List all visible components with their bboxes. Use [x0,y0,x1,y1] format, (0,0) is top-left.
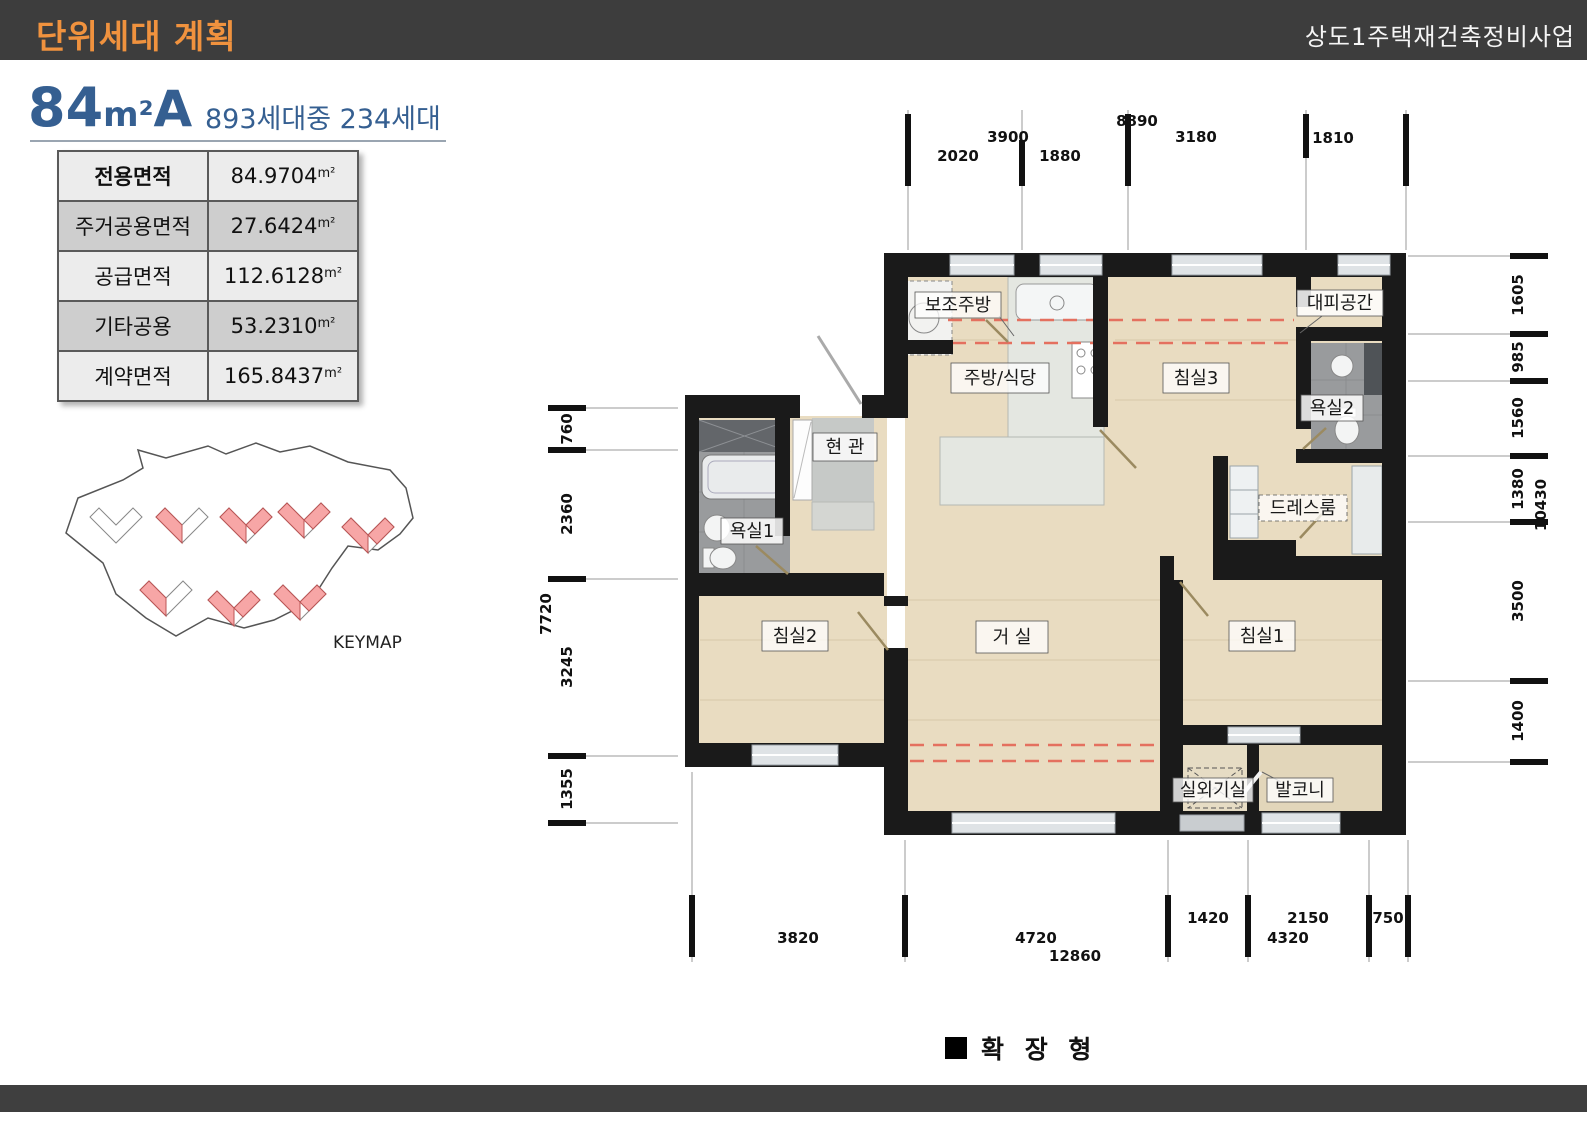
area-row-value: 112.6128 [224,264,324,288]
dim-right-seg-1: 985 [1509,341,1527,372]
entrance-mat [812,502,874,530]
dimension-top: 8890 3900 3180 1810 2020 1880 [905,110,1409,250]
area-row-value: 27.6424 [231,214,318,238]
dim-right-total: 10430 [1532,479,1550,531]
room-label-bath1: 욕실1 [721,518,783,544]
svg-text:실외기실: 실외기실 [1180,780,1246,801]
dim-right-seg-2: 1560 [1509,397,1527,439]
dim-top-seg-1: 1880 [1039,147,1081,165]
svg-text:욕실1: 욕실1 [730,521,775,542]
floor-plan: 8890 3900 3180 1810 2020 1880 760 2360 3… [530,85,1570,985]
dim-right-seg-4: 3500 [1509,580,1527,622]
room-label-bedroom2: 침실2 [762,621,828,651]
dimension-left: 760 2360 3245 1355 7720 [537,405,678,826]
dim-right-seg-3: 1380 [1509,468,1527,510]
dim-bottom-total: 12860 [1049,947,1101,965]
room-label-entrance: 현 관 [813,433,877,461]
dim-right-seg-5: 1400 [1509,700,1527,742]
svg-text:현 관: 현 관 [826,437,865,458]
legend-expanded-type: 확 장 형 [945,1030,1097,1066]
keymap: KEYMAP [48,438,423,673]
area-row-value: 53.2310 [231,314,318,338]
room-label-aux-kitchen: 보조주방 [915,292,1001,318]
dim-top-seg-2: 3180 [1175,128,1217,146]
svg-text:침실2: 침실2 [773,626,818,647]
unit-household-count: 893세대중 234세대 [205,97,441,136]
area-row-value: 84.9704 [231,164,318,188]
svg-text:발코니: 발코니 [1275,780,1325,801]
keymap-buildings [90,503,394,626]
dim-right-seg-0: 1605 [1509,274,1527,316]
area-row-label: 전용면적 [58,151,208,201]
room-label-outdoor-unit: 실외기실 [1173,778,1253,802]
entrance-door-swing [818,336,861,404]
dim-bottom-sub: 4320 [1267,929,1309,947]
room-label-bath2: 욕실2 [1301,395,1363,421]
dim-left-seg-2: 3245 [558,646,576,688]
dimension-right: 1605 985 1560 1380 3500 1400 10430 [1408,253,1550,765]
table-row: 주거공용면적 27.6424m² [58,201,358,251]
washbasin-icon [1331,355,1353,377]
area-row-label: 공급면적 [58,251,208,301]
svg-text:욕실2: 욕실2 [1310,398,1355,419]
area-row-value: 165.8437 [224,364,324,388]
area-row-label: 기타공용 [58,301,208,351]
dim-bottom-seg-2: 1420 [1187,909,1229,927]
sink-icon [1016,284,1098,320]
room-label-living: 거 실 [976,621,1048,653]
table-row: 기타공용 53.2310m² [58,301,358,351]
area-row-label: 계약면적 [58,351,208,401]
keymap-title: KEYMAP [333,633,402,653]
room-label-balcony: 발코니 [1267,778,1333,802]
unit-type-title: 84m²A [28,76,192,139]
area-table: 전용면적 84.9704m² 주거공용면적 27.6424m² 공급면적 112… [57,150,359,402]
svg-text:드레스룸: 드레스룸 [1270,498,1336,519]
svg-text:침실3: 침실3 [1174,368,1219,389]
dim-bottom-seg-0: 3820 [777,929,819,947]
svg-text:보조주방: 보조주방 [925,295,991,316]
svg-text:침실1: 침실1 [1240,626,1285,647]
bathtub-icon [702,455,787,499]
dim-left-seg-3: 1355 [558,768,576,810]
unit-size-unit: m² [103,95,153,135]
title-underline [30,140,446,142]
room-label-bedroom1: 침실1 [1229,621,1295,651]
vent-louver [1180,815,1244,831]
dim-left-seg-1: 2360 [558,493,576,535]
dim-top-total: 8890 [1116,112,1158,130]
room-label-dress: 드레스룸 [1259,495,1347,521]
dim-left-seg-0: 760 [558,413,576,444]
dim-top-sub: 3900 [987,128,1029,146]
project-name: 상도1주택재건축정비사업 [1305,17,1575,52]
svg-text:대피공간: 대피공간 [1307,293,1373,314]
dim-top-seg-0: 2020 [937,147,979,165]
dim-left-total: 7720 [537,593,555,635]
page-title: 단위세대 계획 [36,10,237,58]
toilet-icon [710,547,736,569]
legend-square-icon [945,1037,967,1059]
table-row: 공급면적 112.6128m² [58,251,358,301]
dim-bottom-seg-1: 4720 [1015,929,1057,947]
bath2-closet [1364,343,1382,395]
dim-bottom-seg-3: 2150 [1287,909,1329,927]
table-row: 계약면적 165.8437m² [58,351,358,401]
room-label-bedroom3: 침실3 [1163,363,1229,393]
area-row-label: 주거공용면적 [58,201,208,251]
unit-type-letter: A [153,80,192,138]
room-label-evac: 대피공간 [1297,290,1383,316]
dim-bottom-seg-4: 750 [1372,909,1403,927]
unit-size: 84 [28,76,103,139]
dim-top-seg-3: 1810 [1312,129,1354,147]
room-label-kitchen: 주방/식당 [951,363,1049,393]
svg-text:거 실: 거 실 [993,627,1032,648]
svg-text:주방/식당: 주방/식당 [964,368,1036,389]
legend-label: 확 장 형 [981,1030,1097,1066]
table-row: 전용면적 84.9704m² [58,151,358,201]
footer-bar [0,1085,1587,1112]
